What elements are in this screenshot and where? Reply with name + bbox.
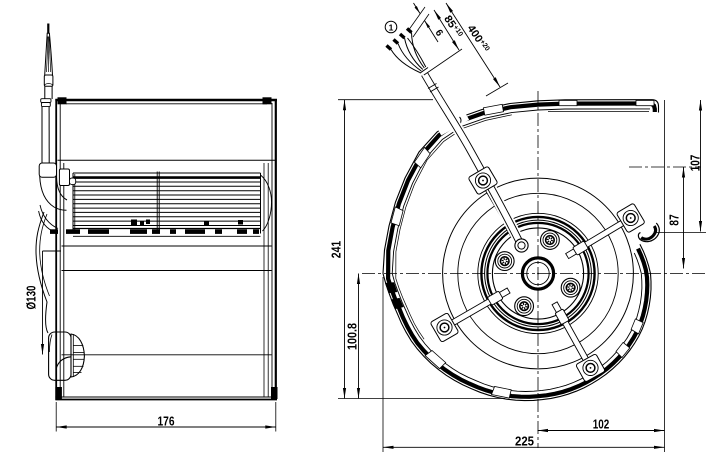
svg-text:241: 241 <box>330 241 344 259</box>
svg-text:102: 102 <box>593 418 610 432</box>
svg-text:87: 87 <box>668 214 682 226</box>
svg-text:107: 107 <box>689 155 703 172</box>
svg-text:100.8: 100.8 <box>346 323 360 350</box>
svg-text:Ø130: Ø130 <box>25 285 39 309</box>
svg-text:176: 176 <box>158 415 175 429</box>
svg-text:1: 1 <box>389 23 394 33</box>
svg-text:225: 225 <box>515 435 534 449</box>
